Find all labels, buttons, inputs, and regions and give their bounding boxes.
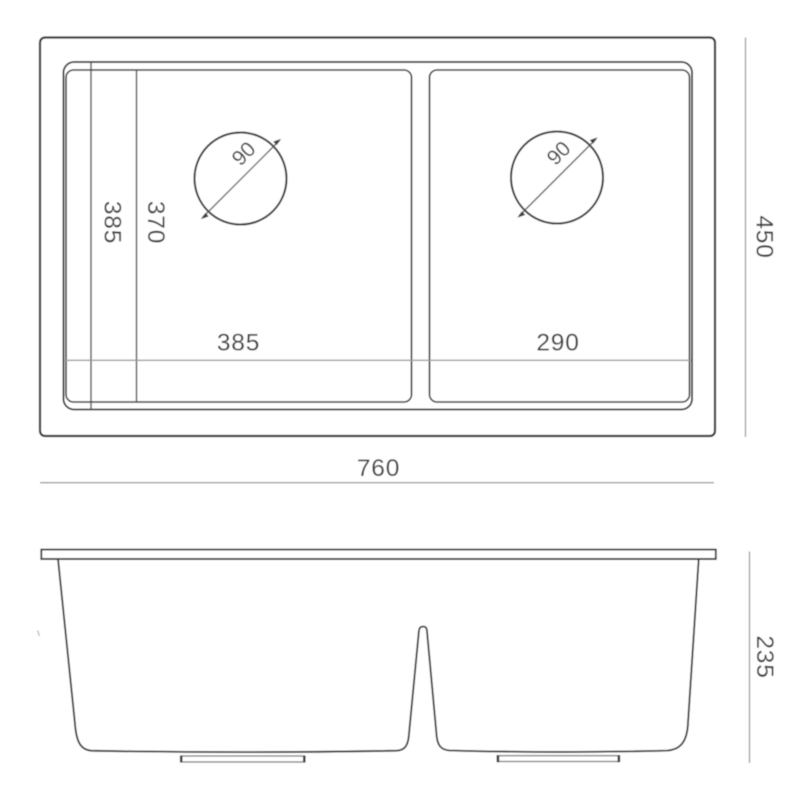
svg-text:290: 290: [536, 330, 579, 357]
svg-text:370: 370: [142, 201, 169, 244]
svg-text:385: 385: [99, 201, 126, 244]
svg-text:450: 450: [751, 215, 778, 258]
svg-text:760: 760: [357, 455, 400, 482]
svg-text:385: 385: [217, 330, 260, 357]
svg-text:235: 235: [751, 635, 778, 678]
